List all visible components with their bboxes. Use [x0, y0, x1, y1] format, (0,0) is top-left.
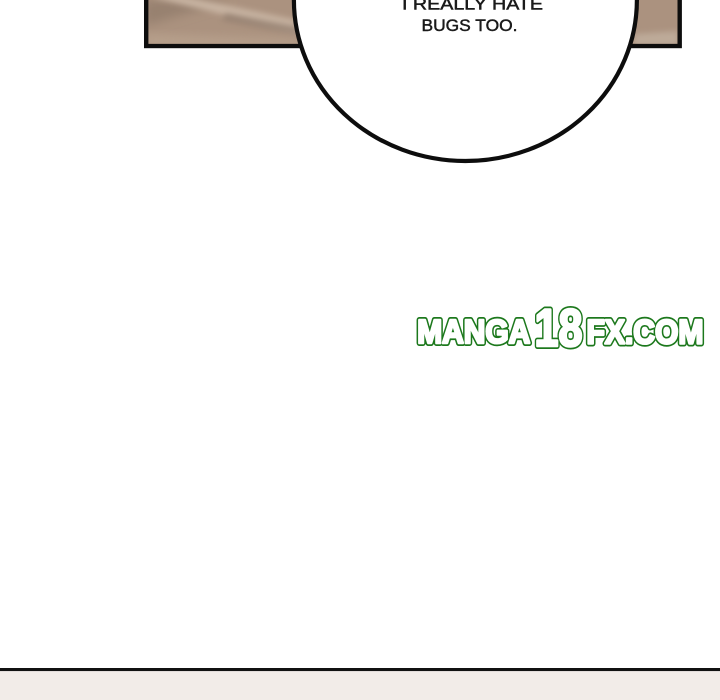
svg-text:MANGA: MANGA: [417, 314, 530, 351]
svg-text:18: 18: [535, 299, 583, 358]
svg-text:BUGS TOO.: BUGS TOO.: [422, 17, 518, 35]
svg-text:I REALLY HATE: I REALLY HATE: [402, 0, 543, 14]
svg-text:FX.COM: FX.COM: [587, 313, 704, 351]
